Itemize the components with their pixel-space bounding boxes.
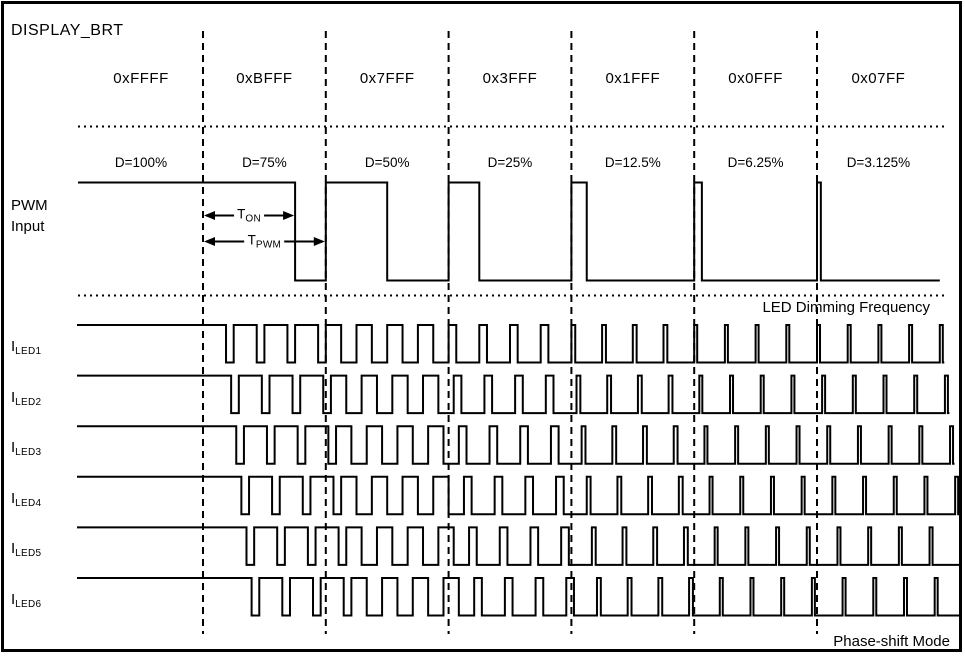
duty-label-1: D=75% bbox=[203, 155, 326, 170]
pwm-input-label-line1: PWM bbox=[11, 195, 48, 216]
channel-label-led4: ILED4 bbox=[11, 490, 41, 509]
ton-arrow-head-left bbox=[204, 211, 215, 220]
channel-label-led1: ILED1 bbox=[11, 338, 41, 357]
tpwm-label: TPWM bbox=[245, 232, 285, 250]
column-header-5: 0x0FFF bbox=[694, 70, 817, 87]
channel-label-led6: ILED6 bbox=[11, 591, 41, 610]
tpwm-label-base: T bbox=[248, 232, 256, 247]
column-header-0: 0xFFFF bbox=[79, 70, 203, 87]
channel-label-led5: ILED5 bbox=[11, 540, 41, 559]
ton-arrow-head-right bbox=[283, 211, 294, 220]
led2-waveform bbox=[77, 376, 949, 414]
duty-label-5: D=6.25% bbox=[694, 155, 817, 170]
column-header-1: 0xBFFF bbox=[203, 70, 326, 87]
column-header-3: 0x3FFF bbox=[449, 70, 572, 87]
duty-label-2: D=50% bbox=[326, 155, 449, 170]
channel-label-led2: ILED2 bbox=[11, 389, 41, 408]
duty-label-0: D=100% bbox=[79, 155, 203, 170]
column-header-2: 0x7FFF bbox=[326, 70, 449, 87]
channel-label-sub: LED5 bbox=[15, 548, 41, 559]
led1-waveform bbox=[77, 325, 944, 363]
channel-label-sub: LED4 bbox=[15, 498, 41, 509]
ton-label: TON bbox=[234, 206, 264, 224]
channel-label-sub: LED3 bbox=[15, 447, 41, 458]
duty-label-3: D=25% bbox=[449, 155, 572, 170]
phase-shift-mode-label: Phase-shift Mode bbox=[833, 633, 950, 650]
ton-label-sub: ON bbox=[245, 213, 261, 224]
led3-waveform bbox=[77, 426, 955, 464]
timing-diagram: DISPLAY_BRT 0xFFFF0xBFFF0x7FFF0x3FFF0x1F… bbox=[1, 1, 962, 652]
channel-label-sub: LED6 bbox=[15, 599, 41, 610]
pwm-input-label-line2: Input bbox=[11, 216, 48, 237]
column-header-4: 0x1FFF bbox=[571, 70, 694, 87]
duty-label-6: D=3.125% bbox=[817, 155, 940, 170]
led6-waveform bbox=[77, 578, 962, 616]
channel-label-led3: ILED3 bbox=[11, 439, 41, 458]
tpwm-arrow-head-right bbox=[314, 237, 325, 246]
led-dimming-frequency-label: LED Dimming Frequency bbox=[762, 299, 930, 316]
waveform-canvas bbox=[4, 4, 962, 649]
pwm-waveform bbox=[78, 183, 940, 281]
tpwm-arrow-head-left bbox=[204, 237, 215, 246]
column-header-6: 0x07FF bbox=[817, 70, 940, 87]
pwm-input-label: PWM Input bbox=[11, 195, 48, 237]
tpwm-label-sub: PWM bbox=[256, 239, 281, 250]
led5-waveform bbox=[77, 527, 962, 565]
led4-waveform bbox=[77, 477, 960, 515]
duty-label-4: D=12.5% bbox=[571, 155, 694, 170]
channel-label-sub: LED2 bbox=[15, 397, 41, 408]
channel-label-sub: LED1 bbox=[15, 346, 41, 357]
diagram-title: DISPLAY_BRT bbox=[11, 22, 124, 40]
